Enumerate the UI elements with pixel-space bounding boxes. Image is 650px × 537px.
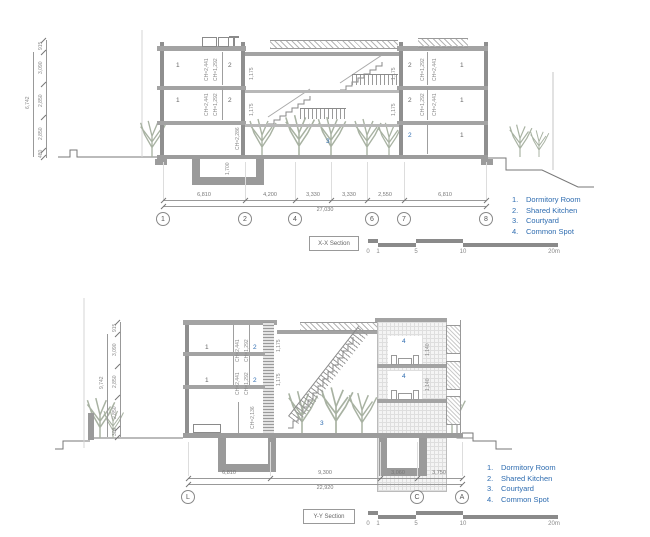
floor-slab — [183, 385, 265, 389]
extension-line — [188, 442, 189, 476]
scale-bar-segment — [378, 515, 416, 519]
legend-label: Shared Kitchen — [501, 474, 552, 485]
entry-bench — [193, 424, 221, 433]
partition-wall — [238, 402, 239, 433]
stair-width-label: 1,175 — [277, 336, 283, 356]
legend-item: 2.Shared Kitchen — [487, 474, 556, 485]
stair-width-label: 1,175 — [277, 370, 283, 390]
legend-label: Dormitory Room — [501, 463, 556, 474]
extension-line — [380, 442, 381, 476]
dimension-line — [188, 478, 462, 479]
legend-item: 1.Dormitory Room — [487, 463, 556, 474]
room-label-common-spot: 4 — [402, 338, 406, 345]
grid-bubble: C — [410, 490, 424, 504]
retaining-wall — [88, 413, 94, 440]
table — [398, 358, 412, 365]
section-title-yy: Y-Y Section — [303, 509, 355, 524]
basement-pit-interior — [226, 438, 268, 464]
cut-wall-hatch — [263, 322, 274, 437]
partition-wall — [233, 325, 234, 352]
yy-section-drawing: 915 3,090 2,850 2,850 300 9,742 4 — [0, 0, 650, 537]
legend-number: 1. — [487, 463, 501, 474]
grid-bubble: L — [181, 490, 195, 504]
scale-label: 20m — [548, 521, 560, 527]
scale-label: 1 — [376, 521, 379, 527]
legend-item: 4.Common Spot — [487, 495, 556, 506]
chair — [413, 390, 419, 400]
column — [185, 322, 189, 437]
room-height-label: 1,140 — [426, 339, 432, 361]
vdim-value: 2,850 — [113, 397, 119, 428]
legend-number: 3. — [487, 484, 501, 495]
vdim-overall-value: 9,742 — [100, 368, 106, 398]
legend-number: 2. — [487, 474, 501, 485]
scale-bar-segment — [416, 511, 463, 515]
dim-value: 3,060 — [391, 470, 405, 476]
floor-slab — [377, 364, 447, 368]
ceiling-height-label: CH=2,136 — [251, 406, 257, 430]
vdim-value: 915 — [113, 322, 119, 334]
stair-railing — [288, 326, 368, 424]
window — [446, 361, 461, 390]
vdim-chain-line — [120, 322, 121, 437]
dim-total-value: 22,920 — [317, 485, 334, 491]
ceiling-height-label: CH=1,292 — [245, 371, 251, 397]
scale-bar-segment — [463, 515, 558, 519]
scale-bar-segment — [368, 511, 378, 515]
section-title-text: Y-Y Section — [313, 514, 344, 520]
extension-line — [462, 442, 463, 476]
window — [446, 396, 461, 425]
chair — [391, 390, 397, 400]
room-height-label: 1,140 — [426, 374, 432, 396]
window — [446, 325, 461, 354]
room-label-dormitory: 1 — [205, 377, 209, 384]
scale-label: 10 — [460, 521, 467, 527]
legend-label: Courtyard — [501, 484, 534, 495]
ceiling-height-label: CH=2,441 — [236, 371, 242, 397]
chair — [391, 355, 397, 365]
room-label-kitchen: 2 — [253, 377, 257, 384]
floor-slab — [183, 352, 265, 356]
vdim-value: 3,090 — [113, 334, 119, 366]
ceiling-height-label: CH=2,441 — [236, 338, 242, 364]
extension-line — [417, 442, 418, 476]
partition-wall — [233, 356, 234, 385]
scale-label: 5 — [414, 521, 417, 527]
chair — [413, 355, 419, 365]
dim-tick — [460, 476, 466, 482]
room-label-dormitory: 1 — [205, 344, 209, 351]
room-label-courtyard: 3 — [320, 420, 324, 427]
drawing-sheet: 915 3,090 2,850 2,850 480 6,742 — [0, 0, 650, 537]
dim-value: 6,810 — [222, 470, 236, 476]
vdim-value: 300 — [113, 427, 119, 437]
room-legend: 1.Dormitory Room 2.Shared Kitchen 3.Cour… — [487, 463, 556, 505]
table — [398, 393, 412, 400]
legend-item: 3.Courtyard — [487, 484, 556, 495]
vdim-overall-line — [107, 334, 108, 437]
floor-slab — [377, 399, 447, 403]
dim-value: 3,750 — [432, 470, 446, 476]
room-label-kitchen: 2 — [253, 344, 257, 351]
vdim-value: 2,850 — [113, 366, 119, 397]
legend-label: Common Spot — [501, 495, 549, 506]
roof-slab — [375, 318, 447, 322]
room-label-common-spot: 4 — [402, 373, 406, 380]
ceiling-height-label: CH=1,292 — [245, 338, 251, 364]
legend-number: 4. — [487, 495, 501, 506]
dim-value: 9,300 — [318, 470, 332, 476]
scale-label: 0 — [366, 521, 369, 527]
basement-pit-interior — [387, 438, 419, 468]
common-spot-room: 4 — [388, 371, 422, 399]
dim-tick — [460, 482, 466, 488]
grid-bubble: A — [455, 490, 469, 504]
common-spot-room: 4 — [388, 336, 422, 364]
extension-line — [270, 442, 271, 476]
